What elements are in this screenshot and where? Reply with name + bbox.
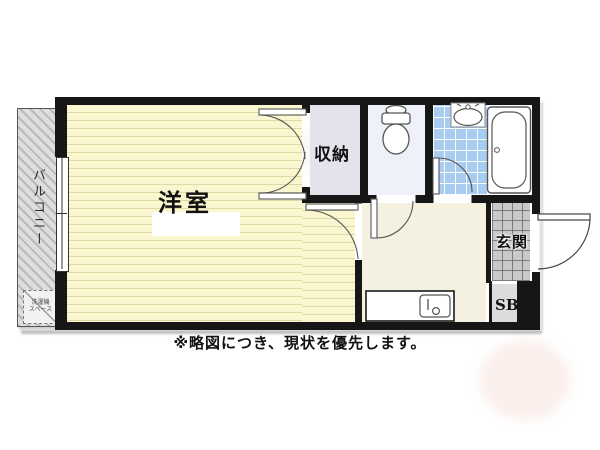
entrance-door-swing: [538, 214, 590, 269]
washer-space-label: スペース: [24, 306, 57, 313]
outer-wall-bottom: [55, 322, 540, 330]
room-kitchen-wall: [355, 260, 362, 322]
toilet-room-floor: [368, 105, 425, 195]
plan-shadow: [540, 102, 543, 331]
western-room-label: 洋室: [158, 183, 212, 218]
kitchen-entrance-wall: [486, 203, 491, 283]
mid-horizontal-wall: [302, 195, 540, 203]
western-room-floor: [302, 203, 355, 322]
bathroom-doorway: [433, 195, 472, 203]
sliding-window: [56, 157, 69, 272]
outer-wall-top: [55, 97, 540, 105]
closet-wall-stub: [302, 97, 310, 113]
outer-wall-left: [55, 97, 67, 157]
shoebox-divider: [489, 281, 492, 322]
closet-label: 収納: [314, 140, 350, 165]
bathroom-tiles: [433, 105, 487, 195]
toilet-bath-wall: [425, 97, 433, 203]
disclaimer-text: ※略図につき、現状を優先します。: [0, 332, 600, 353]
entrance-label: 玄関: [496, 231, 528, 252]
outer-wall-left: [55, 270, 67, 330]
floor-plan-image: バルコニー 洗濯機 スペース: [0, 0, 600, 450]
kitchen-hall-floor: [362, 203, 486, 322]
western-room-doorway: [355, 203, 362, 262]
closet-toilet-wall: [360, 97, 368, 203]
wall-pillar-shoebox: [517, 281, 540, 322]
toilet-doorway: [376, 195, 416, 203]
washer-space-box: 洗濯機 スペース: [23, 290, 58, 324]
washer-space-label: 洗濯機: [24, 299, 57, 306]
shoe-box-label: SB: [495, 296, 519, 314]
balcony-label: バルコニー: [28, 168, 47, 248]
